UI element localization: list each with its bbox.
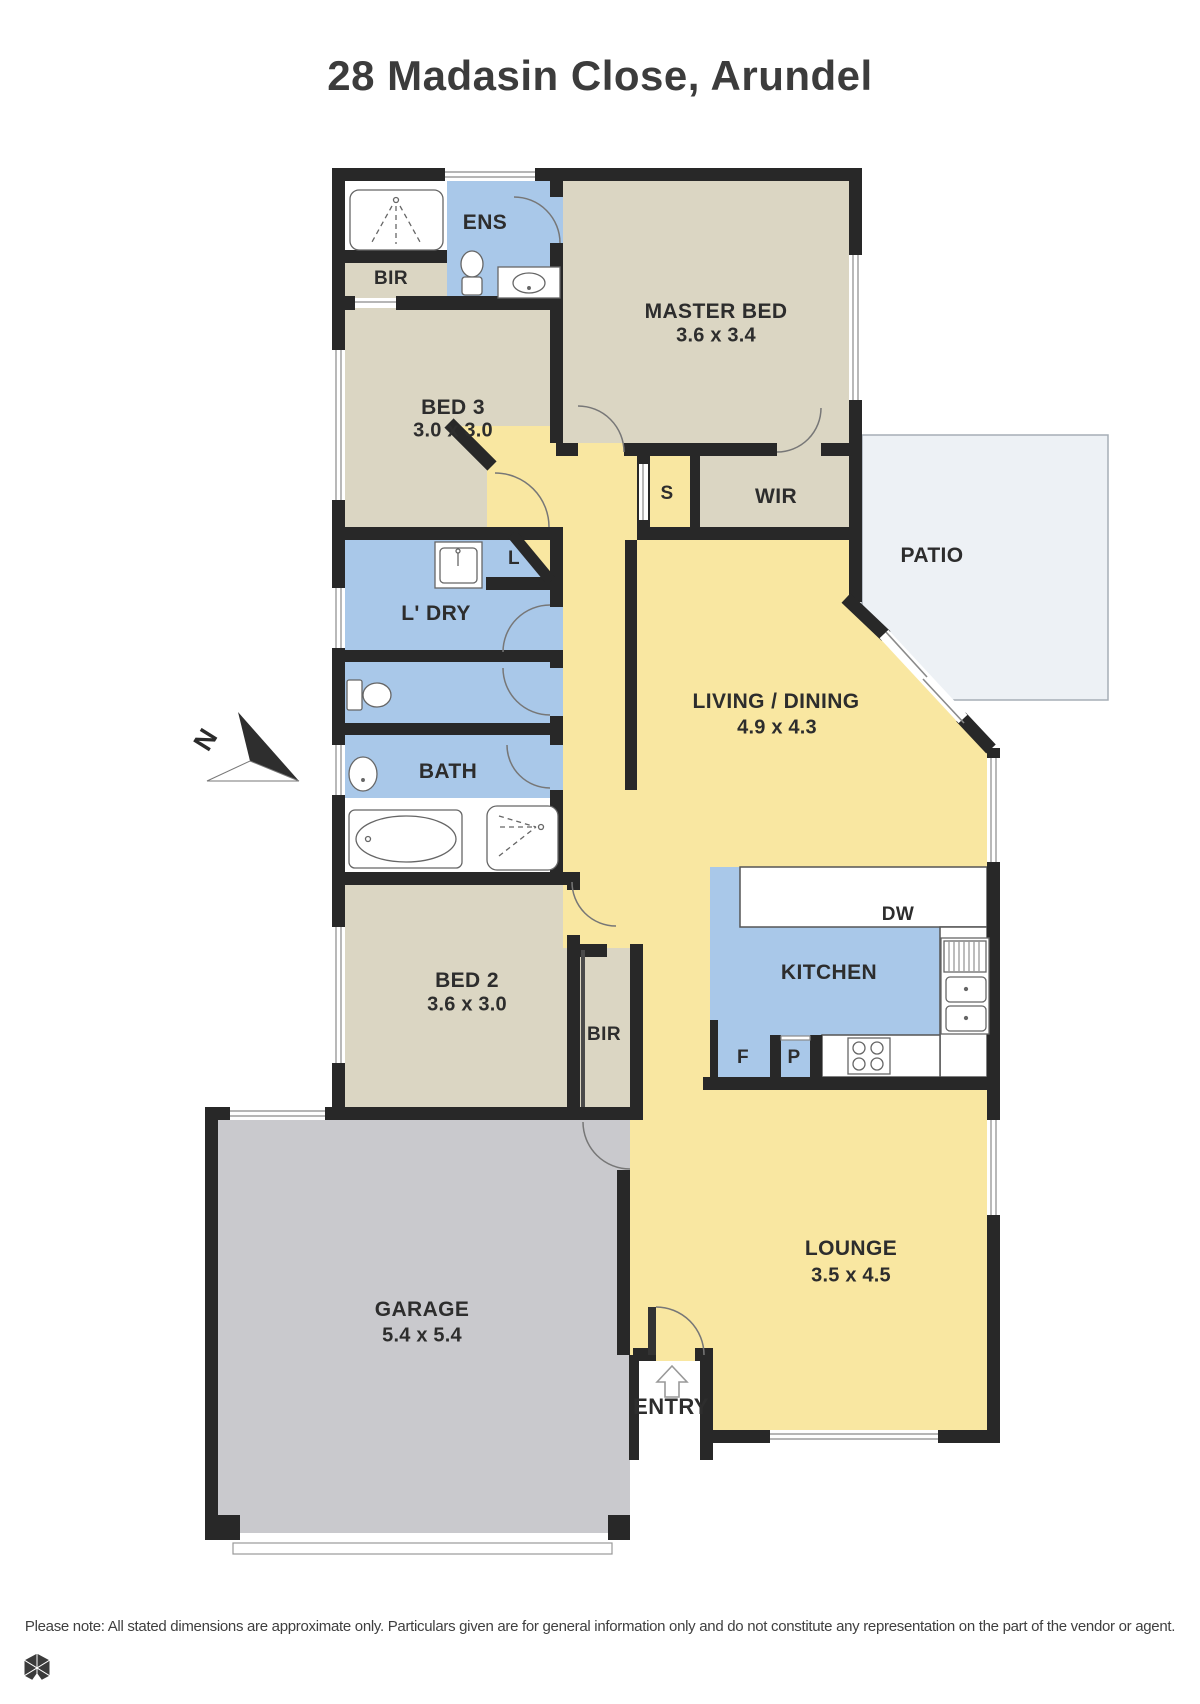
shower-icon xyxy=(487,806,558,870)
floorplan-page: 28 Madasin Close, Arundel xyxy=(0,0,1200,1704)
kitchen-sink-icon xyxy=(941,938,989,1034)
room-label-bed3: BED 3 xyxy=(421,396,485,420)
room-label-living: LIVING / DINING xyxy=(692,690,859,714)
cooktop-icon xyxy=(848,1038,890,1074)
room-label-laundry: L' DRY xyxy=(401,602,471,626)
room-dims-master: 3.6 x 3.4 xyxy=(676,325,756,348)
bathtub-icon xyxy=(349,810,462,868)
room-dims-living: 4.9 x 4.3 xyxy=(737,717,817,740)
room-dims-bed2: 3.6 x 3.0 xyxy=(427,994,507,1017)
entry-label: ENTRY xyxy=(633,1394,709,1420)
room-label-kitchen: KITCHEN xyxy=(781,961,877,985)
room-label-master: MASTER BED xyxy=(645,300,788,324)
room-dims-lounge: 3.5 x 4.5 xyxy=(811,1265,891,1288)
room-label-store: S xyxy=(660,483,673,505)
agency-logo-icon xyxy=(24,1653,50,1683)
room-label-bath: BATH xyxy=(419,760,477,784)
room-label-ens: ENS xyxy=(463,211,507,235)
toilet-icon xyxy=(461,251,483,295)
vanity-basin-icon xyxy=(349,757,377,791)
room-dims-garage: 5.4 x 5.4 xyxy=(382,1325,462,1348)
room-label-dishwasher: DW xyxy=(882,904,914,926)
shower-icon xyxy=(350,190,443,250)
floorplan-graphic xyxy=(0,0,1200,1704)
room-label-bir2: BIR xyxy=(587,1024,621,1046)
toilet-icon xyxy=(347,680,391,710)
vanity-basin-icon xyxy=(498,267,560,298)
room-label-fridge: F xyxy=(737,1047,749,1069)
north-arrow-icon xyxy=(207,712,299,781)
room-label-bed2: BED 2 xyxy=(435,969,499,993)
laundry-tub-icon xyxy=(435,542,482,588)
disclaimer-text: Please note: All stated dimensions are a… xyxy=(0,1618,1200,1635)
room-label-linen: L xyxy=(508,548,520,570)
room-label-garage: GARAGE xyxy=(375,1298,470,1322)
room-label-wir: WIR xyxy=(755,485,797,509)
room-label-bir: BIR xyxy=(374,268,408,290)
room-label-patio: PATIO xyxy=(900,544,963,568)
room-dims-bed3: 3.0 x 3.0 xyxy=(413,420,493,443)
room-label-lounge: LOUNGE xyxy=(805,1237,897,1261)
room-label-pantry: P xyxy=(787,1047,800,1069)
